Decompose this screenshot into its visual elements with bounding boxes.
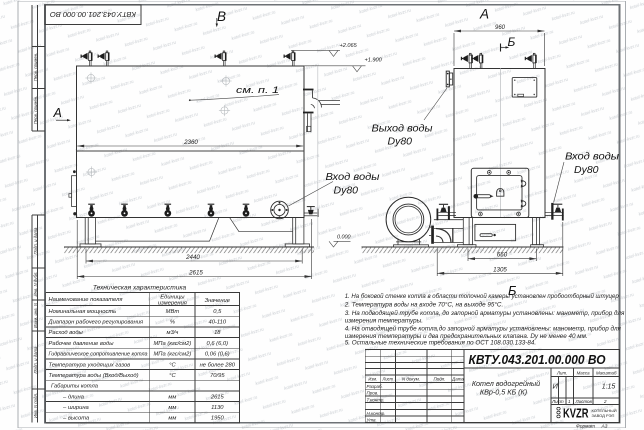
svg-text:Лист: Лист: [382, 377, 394, 382]
svg-text:Н.контр.: Н.контр.: [367, 411, 386, 416]
svg-text:40-110: 40-110: [208, 320, 226, 326]
svg-text:2. Температура воды на входе: 2. Температура воды на входе 70°С, на вы…: [344, 300, 504, 308]
svg-text:2615: 2615: [188, 270, 203, 277]
svg-text:1. На боковой стенке котла в: 1. На боковой стенке котла в области топ…: [345, 292, 619, 300]
svg-text:Вход воды: Вход воды: [565, 151, 619, 163]
svg-text:Перв. примен.: Перв. примен.: [33, 96, 38, 125]
svg-text:960: 960: [495, 25, 506, 31]
svg-text:Значение: Значение: [205, 298, 231, 304]
svg-text:+1.900: +1.900: [365, 58, 383, 64]
svg-text:Dy80: Dy80: [388, 136, 413, 148]
svg-text:А3: А3: [601, 423, 608, 429]
svg-text:Масса: Масса: [577, 370, 591, 375]
svg-text:Подп. и дата: Подп. и дата: [33, 346, 38, 374]
svg-text:1:15: 1:15: [602, 384, 616, 391]
svg-text:Подп. и дата: Подп. и дата: [33, 227, 38, 255]
svg-text:°С: °С: [169, 362, 176, 368]
svg-text:Подп.: Подп.: [434, 377, 446, 382]
svg-text:КВТУ.043.201.00.000 ВО: КВТУ.043.201.00.000 ВО: [469, 353, 606, 367]
svg-text:Наименование показателя: Наименование показателя: [49, 297, 123, 303]
svg-text:КВТУ.043.201.00.000 ВО: КВТУ.043.201.00.000 ВО: [50, 10, 136, 19]
svg-text:В: В: [217, 9, 226, 24]
svg-text:Т.контр.: Т.контр.: [367, 397, 385, 402]
svg-text:18: 18: [214, 330, 221, 336]
svg-text:м3/ч: м3/ч: [166, 330, 178, 336]
svg-text:– ширина: – ширина: [62, 405, 90, 411]
svg-text:Dy80: Dy80: [334, 185, 359, 197]
svg-text:измерения температуры.: измерения температуры.: [345, 317, 423, 324]
svg-text:N докум.: N докум.: [402, 377, 420, 382]
svg-text:ООО: ООО: [557, 407, 563, 419]
svg-text:И: И: [553, 382, 559, 391]
svg-text:КВр-0,5 КБ (К): КВр-0,5 КБ (К): [480, 388, 527, 397]
svg-text:мм: мм: [168, 394, 176, 400]
svg-text:Дата: Дата: [451, 377, 464, 382]
svg-text:1305: 1305: [493, 266, 507, 273]
svg-text:А: А: [479, 7, 489, 22]
svg-text:Dy80: Dy80: [574, 164, 599, 176]
svg-text:°С: °С: [169, 373, 176, 379]
svg-text:Номинальная мощность: Номинальная мощность: [49, 309, 117, 315]
svg-text:Температура уходящих газов: Температура уходящих газов: [49, 362, 131, 368]
svg-text:5. Остальные технические треб: 5. Остальные технические требования по О…: [345, 339, 536, 347]
svg-text:1950: 1950: [211, 416, 225, 422]
svg-text:Масштаб: Масштаб: [596, 370, 617, 375]
svg-text:%: %: [170, 320, 175, 326]
svg-text:не более 280: не более 280: [200, 362, 236, 368]
svg-text:Расход воды: Расход воды: [49, 330, 84, 336]
svg-text:МВт: МВт: [166, 309, 180, 315]
svg-text:Разраб.: Разраб.: [367, 384, 383, 389]
svg-text:Инв. N дубл.: Инв. N дубл.: [33, 272, 38, 297]
svg-text:МПа (кгс/см2): МПа (кгс/см2): [153, 352, 191, 358]
svg-text:Выход воды: Выход воды: [372, 123, 433, 135]
svg-text:Температура воды (Вход/Выход): Температура воды (Вход/Выход): [49, 373, 139, 379]
svg-text:ЗАВОД РЭП: ЗАВОД РЭП: [592, 413, 615, 418]
svg-text:Техническая характеристика: Техническая характеристика: [93, 284, 187, 291]
svg-text:– высота: – высота: [62, 416, 90, 422]
svg-text:1130: 1130: [211, 405, 224, 411]
svg-text:мм: мм: [168, 405, 176, 411]
svg-text:70/95: 70/95: [210, 373, 225, 379]
svg-text:Изм.: Изм.: [368, 377, 377, 382]
svg-text:Габариты котла: Габариты котла: [51, 384, 99, 390]
svg-text:Утв.: Утв.: [367, 417, 377, 422]
svg-text:– длина: – длина: [62, 394, 85, 400]
svg-text:4. На отводящей трубе котла,д: 4. На отводящей трубе котла,до запорной …: [345, 324, 622, 332]
svg-text:0,06 (0,6): 0,06 (0,6): [205, 352, 230, 358]
svg-text:0,5: 0,5: [213, 309, 222, 315]
svg-text:KVZR: KVZR: [563, 406, 589, 421]
svg-text:Перв. примен.: Перв. примен.: [33, 53, 38, 82]
svg-text:мм: мм: [168, 416, 176, 422]
svg-text:2440: 2440: [185, 254, 200, 261]
svg-text:660: 660: [497, 252, 508, 259]
svg-text:см. п. 1: см. п. 1: [236, 85, 279, 95]
svg-text:Б: Б: [508, 35, 516, 49]
svg-text:измерения: измерения: [158, 301, 187, 307]
svg-text:Формат: Формат: [576, 423, 595, 429]
svg-text:МПа (кгс/см2): МПа (кгс/см2): [153, 341, 191, 347]
svg-text:2: 2: [603, 399, 607, 404]
svg-text:Взам. инв. N: Взам. инв. N: [33, 302, 38, 328]
svg-text:Диапазон рабочего регулировани: Диапазон рабочего регулирования: [48, 320, 144, 326]
svg-text:Листов: Листов: [575, 399, 593, 404]
svg-text:Гидравлическое сопротивление к: Гидравлическое сопротивление котла: [49, 352, 149, 358]
svg-text:Вход воды: Вход воды: [326, 171, 380, 183]
svg-text:Инв. N подл.: Инв. N подл.: [33, 393, 38, 418]
svg-text:Лит.: Лит.: [556, 370, 567, 375]
svg-text:А: А: [53, 106, 62, 120]
svg-text:Пров.: Пров.: [367, 391, 379, 396]
svg-text:0.000: 0.000: [337, 235, 351, 241]
svg-text:3. На подводящей трубе котла,: 3. На подводящей трубе котла, до запорно…: [345, 309, 625, 317]
svg-text:2615: 2615: [210, 394, 225, 400]
svg-text:Лист: Лист: [551, 399, 564, 404]
svg-text:0,6 (6,0): 0,6 (6,0): [207, 341, 229, 347]
svg-text:2360: 2360: [183, 139, 198, 146]
svg-text:+2.065: +2.065: [340, 43, 358, 49]
svg-text:Рабочее давление воды: Рабочее давление воды: [49, 341, 115, 347]
